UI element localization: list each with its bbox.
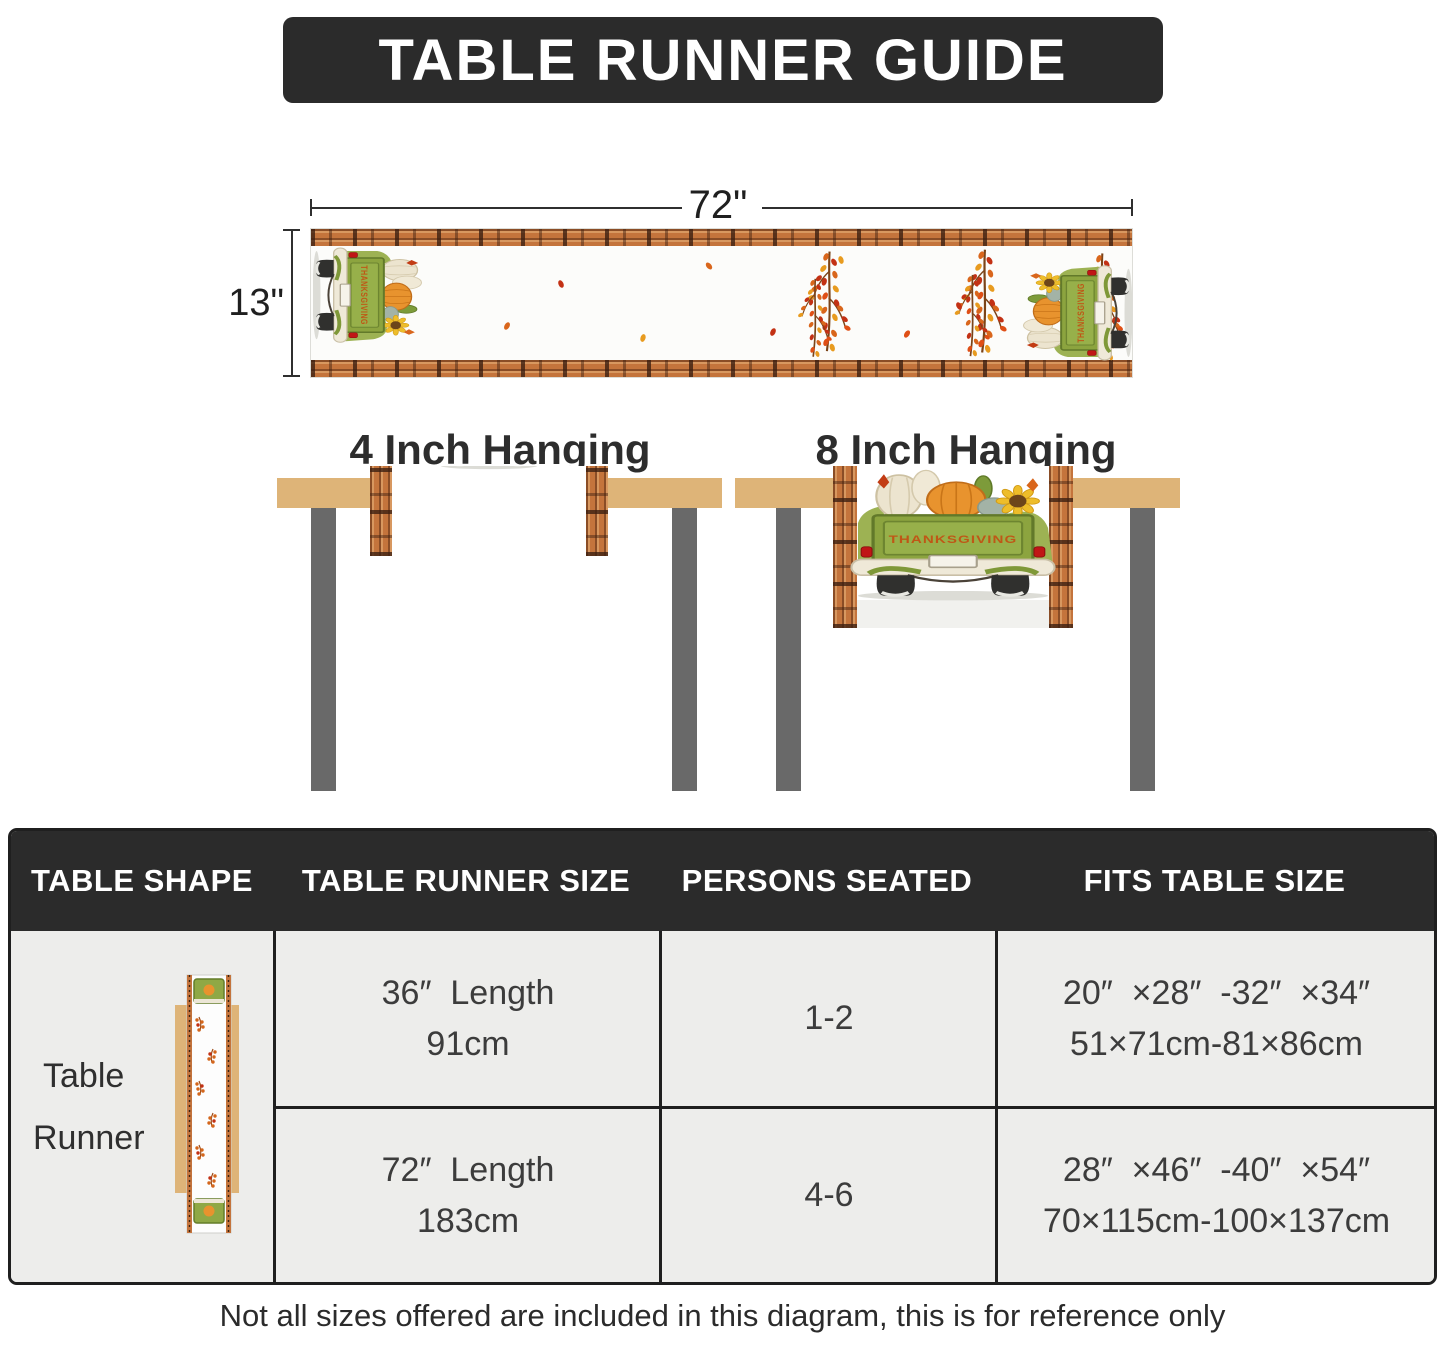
spec-table-body: Table Runner [11,931,1434,1282]
hanging-runner-8inch [833,466,1073,628]
size-row1-line1: 36″ Length [382,968,555,1019]
cell-fits-row2: 28″ ×46″ -40″ ×54″ 70×115cm-100×137cm [999,1109,1434,1282]
cell-fits-row1: 20″ ×28″ -32″ ×34″ 51×71cm-81×86cm [999,931,1434,1106]
size-row2-line2: 183cm [417,1196,519,1247]
persons-row2: 4-6 [804,1170,853,1221]
right-table-leg-2 [1130,508,1155,791]
hang8-truck [845,468,1061,602]
runner-truck-right [1000,245,1132,363]
header-persons-seated: PERSONS SEATED [659,831,995,931]
shape-mini-runner [153,973,265,1239]
fits-row1-line1: 20″ ×28″ -32″ ×34″ [1063,968,1370,1019]
scattered-leaves [503,255,963,342]
shape-label-line2: Runner [33,1119,145,1158]
table-runner-graphic [310,228,1133,378]
left-table-leg-2 [672,508,697,791]
runner-plaid-border-top [311,229,1132,246]
size-row2-line1: 72″ Length [382,1145,555,1196]
disclaimer-text: Not all sizes offered are included in th… [0,1298,1445,1334]
height-dim-line [291,229,293,377]
title-banner: TABLE RUNNER GUIDE [283,17,1163,103]
hanging-runner-4inch [370,466,608,556]
cell-size-row2: 72″ Length 183cm [277,1109,659,1282]
right-table-leg-1 [776,508,801,791]
width-dim-line-right [762,207,1133,209]
height-dim-tick-top [283,229,300,231]
cell-persons-row1: 1-2 [663,931,995,1106]
cell-size-row1: 36″ Length 91cm [277,931,659,1106]
fits-row2-line2: 70×115cm-100×137cm [1043,1196,1390,1247]
height-dim-tick-bottom [283,375,300,377]
size-row1-line2: 91cm [426,1019,509,1070]
hang4-truck [381,466,597,556]
spec-table-header: TABLE SHAPE TABLE RUNNER SIZE PERSONS SE… [11,831,1434,931]
fits-row2-line1: 28″ ×46″ -40″ ×54″ [1063,1145,1370,1196]
fits-row1-line2: 51×71cm-81×86cm [1070,1019,1363,1070]
width-dim-tick-left [310,199,312,216]
spec-table: TABLE SHAPE TABLE RUNNER SIZE PERSONS SE… [8,828,1437,1285]
width-dim-label: 72" [673,183,763,228]
width-dim-line-left [310,207,682,209]
left-table-leg-1 [311,508,336,791]
height-dim-label: 13" [222,282,284,325]
header-fits-table-size: FITS TABLE SIZE [995,831,1434,931]
table-runner-guide-infographic: TABLE RUNNER GUIDE 72" 13" [0,0,1445,1353]
runner-truck-left [313,245,445,363]
width-dim-tick-right [1131,199,1133,216]
hang8-bottom-area [857,600,1049,628]
header-table-shape: TABLE SHAPE [11,831,273,931]
shape-label-line1: Table [43,1057,124,1096]
page-title: TABLE RUNNER GUIDE [378,27,1067,94]
persons-row1: 1-2 [804,993,853,1044]
cell-persons-row2: 4-6 [663,1109,995,1282]
header-runner-size: TABLE RUNNER SIZE [273,831,659,931]
